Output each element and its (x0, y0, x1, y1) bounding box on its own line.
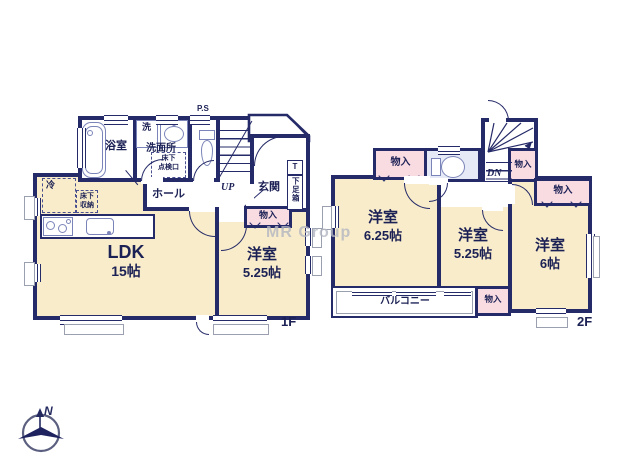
laundry-label: 洗 (142, 123, 151, 133)
svg-text:N: N (44, 404, 53, 418)
bedroom2f-b-name-label: 洋室 (437, 228, 509, 245)
bedroom2f-c-size-label: 6帖 (510, 257, 590, 271)
underfloor-storage-label-1: 床下 (76, 193, 98, 201)
floor-plan-canvas: P.S 浴室 洗 洗面所 床下 点検口 ホール UP 玄関 T 下足箱 冷 床下… (0, 0, 620, 465)
window (104, 115, 128, 125)
burner-icon (58, 224, 67, 233)
window-sill (312, 256, 322, 276)
bedroom-1f-size-label: 5.25帖 (212, 266, 312, 280)
window (190, 115, 210, 125)
back-door-arc (196, 322, 209, 335)
closet-2f-a-label: 物入 (373, 157, 428, 168)
underfloor-hatch-label-2: 点検口 (151, 164, 186, 172)
window (156, 115, 178, 125)
door-gap (246, 184, 254, 206)
ldk-name-label: LDK (66, 243, 186, 263)
window-sill (536, 317, 568, 328)
window-sill (24, 262, 35, 286)
stair-top-door-arc (488, 100, 509, 121)
washroom-label: 洗面所 (146, 143, 176, 154)
bedroom-1f-name-label: 洋室 (212, 247, 312, 264)
burner-icon (46, 221, 55, 230)
balcony-label: バルコニー (345, 296, 465, 307)
closet-2f-b-label: 物入 (508, 160, 538, 169)
window-sill (24, 196, 35, 220)
window (438, 146, 460, 155)
tap-dot (107, 231, 111, 235)
window (352, 287, 392, 296)
underfloor-storage-label-2: 収納 (76, 202, 98, 210)
entrance-label: 玄関 (258, 181, 280, 193)
window-sill (64, 324, 124, 335)
window (77, 128, 86, 168)
shoe-box-top-label: T (287, 163, 303, 172)
burner-icon (66, 219, 71, 224)
fridge-label: 冷 (46, 181, 55, 191)
closet-1f-label: 物入 (244, 211, 292, 221)
stairs-down-label: DN (487, 168, 501, 179)
pipe-space-label: P.S (197, 105, 209, 114)
window-sill (213, 324, 269, 335)
watermark: MR Group (266, 224, 396, 242)
ldk-size-label: 15帖 (66, 264, 186, 279)
stair-winder-2f (485, 122, 535, 154)
bathroom-label: 浴室 (105, 140, 127, 152)
window (444, 287, 471, 296)
compass-icon: N (14, 402, 70, 460)
door-gap (219, 206, 244, 222)
bath-drain-icon (87, 130, 93, 136)
toilet-tank-icon (431, 158, 441, 176)
toilet-bowl-icon (441, 156, 465, 178)
closet-2f-d-label: 物入 (475, 295, 511, 304)
window-sill (593, 236, 600, 278)
bedroom2f-c-name-label: 洋室 (510, 238, 590, 255)
floor1-label: 1F (281, 315, 296, 329)
toilet-tank-icon (199, 130, 215, 140)
hall-label: ホール (152, 188, 185, 200)
bedroom2f-b-size-label: 5.25帖 (437, 247, 509, 261)
underfloor-hatch-label-1: 床下 (151, 155, 186, 163)
sink-bowl-icon (164, 126, 184, 142)
floor2-label: 2F (577, 315, 592, 329)
shoe-box-label: 下足箱 (291, 177, 299, 203)
window (396, 287, 436, 296)
closet-2f-c-label: 物入 (534, 186, 592, 196)
stairs-up-label: UP (221, 182, 234, 193)
